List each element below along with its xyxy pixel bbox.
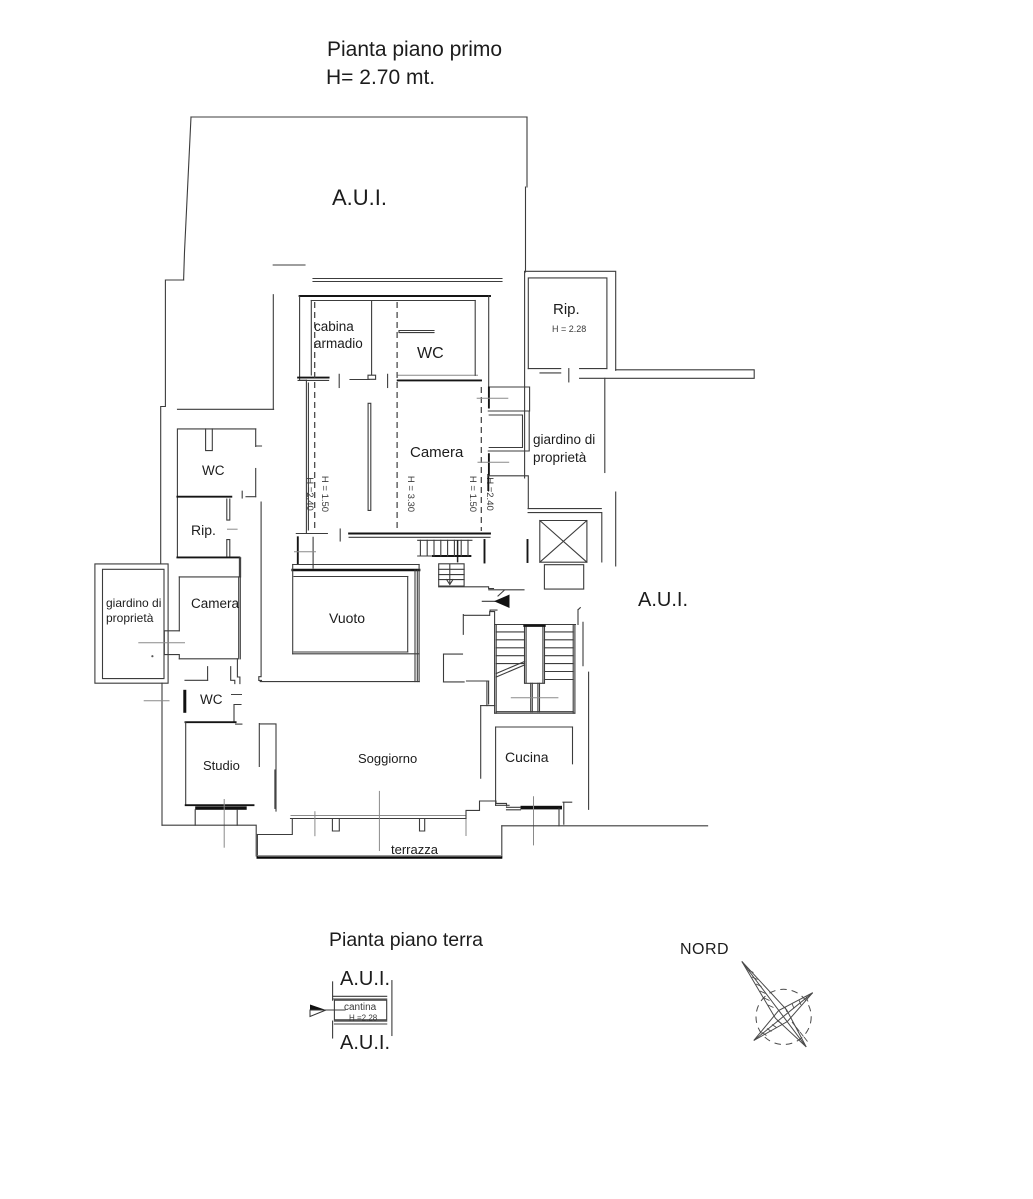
svg-text:proprietà: proprietà — [106, 611, 154, 625]
svg-text:WC: WC — [417, 345, 444, 362]
svg-text:H= 2.70 mt.: H= 2.70 mt. — [326, 66, 435, 89]
svg-text:NORD: NORD — [680, 941, 729, 958]
svg-text:Camera: Camera — [410, 444, 464, 461]
svg-text:A.U.I.: A.U.I. — [638, 589, 688, 611]
svg-text:Vuoto: Vuoto — [329, 610, 365, 626]
svg-text:H =2.40: H =2.40 — [304, 477, 315, 511]
svg-text:Soggiorno: Soggiorno — [358, 751, 417, 766]
svg-text:H = 3.30: H = 3.30 — [405, 476, 416, 512]
svg-text:cantina: cantina — [344, 1002, 377, 1013]
svg-text:Rip.: Rip. — [191, 522, 216, 538]
svg-text:WC: WC — [202, 463, 225, 478]
svg-text:Studio: Studio — [203, 758, 240, 773]
svg-text:A.U.I.: A.U.I. — [340, 1032, 390, 1054]
svg-text:H =2.28: H =2.28 — [349, 1014, 378, 1023]
svg-text:terrazza: terrazza — [391, 842, 439, 857]
svg-text:Rip.: Rip. — [553, 301, 580, 318]
svg-text:A.U.I.: A.U.I. — [332, 185, 387, 210]
svg-text:H = 1.50: H = 1.50 — [467, 476, 478, 512]
svg-text:proprietà: proprietà — [533, 450, 587, 465]
svg-text:H = 2.28: H = 2.28 — [552, 324, 586, 334]
svg-text:armadio: armadio — [314, 336, 363, 351]
svg-text:cabina: cabina — [314, 319, 354, 334]
svg-text:Camera: Camera — [191, 596, 240, 611]
svg-text:WC: WC — [200, 692, 223, 707]
svg-text:H = 1.50: H = 1.50 — [319, 476, 330, 512]
svg-text:giardino di: giardino di — [106, 596, 161, 610]
svg-text:Pianta piano primo: Pianta piano primo — [327, 38, 502, 61]
svg-text:A.U.I.: A.U.I. — [340, 968, 390, 990]
svg-text:giardino di: giardino di — [533, 432, 595, 447]
svg-text:Cucina: Cucina — [505, 749, 549, 765]
svg-text:Pianta piano terra: Pianta piano terra — [329, 929, 483, 951]
svg-text:H =2.40: H =2.40 — [484, 477, 495, 511]
